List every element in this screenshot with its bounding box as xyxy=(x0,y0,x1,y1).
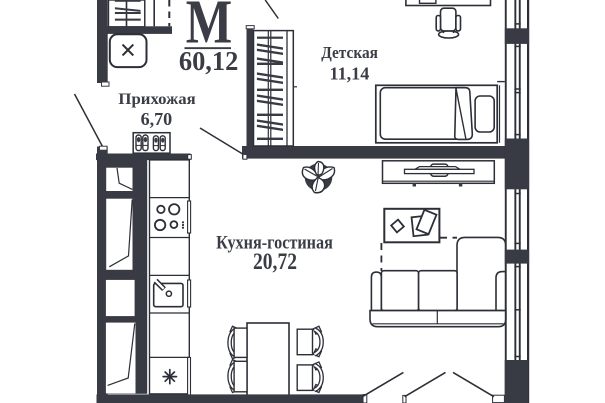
svg-text:6,70: 6,70 xyxy=(141,109,173,129)
svg-text:Прихожая: Прихожая xyxy=(118,91,196,108)
svg-text:20,72: 20,72 xyxy=(253,249,297,275)
svg-text:60,12: 60,12 xyxy=(179,46,239,76)
svg-text:11,14: 11,14 xyxy=(330,64,370,84)
svg-text:Детская: Детская xyxy=(321,43,378,62)
